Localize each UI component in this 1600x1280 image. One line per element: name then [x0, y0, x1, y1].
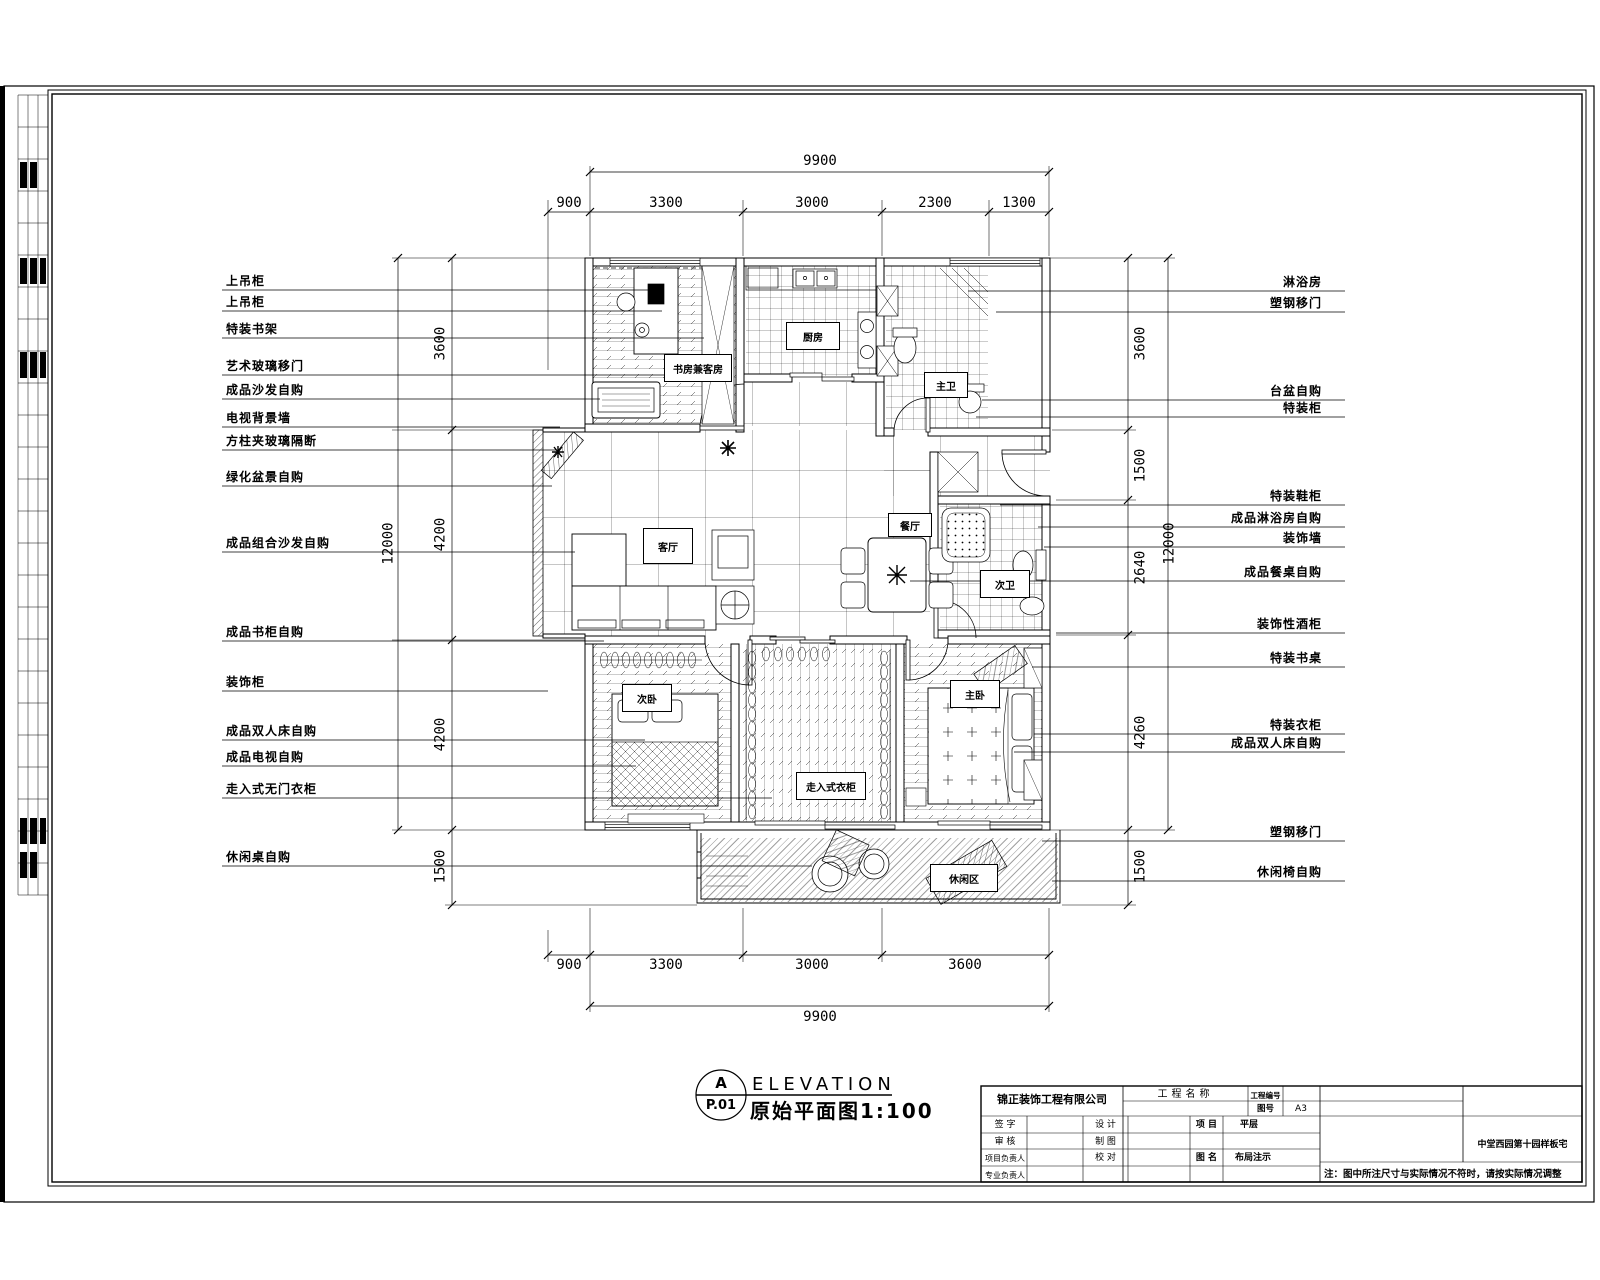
annotation-right: 特装柜: [1283, 401, 1322, 415]
dim-right-3600: 3600: [1134, 316, 1149, 372]
dim-right-overall: 12000: [1163, 508, 1178, 580]
annotation-left: 艺术玻璃移门: [226, 359, 304, 373]
titleblock-review-label: 审 核: [983, 1137, 1027, 1148]
annotation-right: 休闲椅自购: [1257, 865, 1322, 879]
annotation-left: 走入式无门衣柜: [226, 782, 317, 796]
titleblock-project-cell: 中堂西园第十园样板宅: [1465, 1140, 1580, 1151]
title-elevation: ELEVATION: [752, 1074, 896, 1095]
dim-left-3600: 3600: [434, 316, 449, 372]
annotation-right: 装饰墙: [1283, 531, 1322, 545]
annotation-right: 塑钢移门: [1270, 296, 1322, 310]
room-label: 次卫: [980, 570, 1030, 598]
annotation-right: 特装书桌: [1270, 651, 1322, 665]
annotation-left: 上吊柜: [226, 274, 265, 288]
titleblock-check-label: 校 对: [1085, 1153, 1126, 1164]
dim-right-4260: 4260: [1134, 705, 1149, 761]
annotation-right: 装饰性酒柜: [1257, 617, 1322, 631]
titleblock-lead-label: 专业负责人: [981, 1170, 1029, 1181]
annotation-right: 成品淋浴房自购: [1231, 511, 1322, 525]
room-label: 次卧: [622, 684, 672, 712]
bay-window: [533, 430, 543, 636]
dim-top-seg-1300: 1300: [991, 196, 1047, 211]
dim-top-seg-3000: 3000: [784, 196, 840, 211]
annotation-left: 方柱夹玻璃隔断: [226, 434, 317, 448]
annotation-right: 特装鞋柜: [1270, 489, 1322, 503]
room-label: 客厅: [643, 528, 693, 564]
titleblock-dwg-value: 布局注示: [1235, 1153, 1271, 1164]
annotation-left: 成品双人床自购: [226, 724, 317, 738]
dim-left-1500: 1500: [434, 839, 449, 895]
annotation-left: 休闲桌自购: [226, 850, 291, 864]
titleblock-pm-label: 项目负责人: [981, 1153, 1029, 1164]
annotation-right: 成品餐桌自购: [1244, 565, 1322, 579]
revision-strip: [18, 95, 48, 895]
titleblock-item-label: 项 目: [1190, 1120, 1223, 1131]
titleblock-project-name-label: 工程名称: [1125, 1089, 1246, 1100]
annotation-left: 绿化盆景自购: [226, 470, 304, 484]
dim-left-overall: 12000: [382, 508, 397, 580]
titleblock-sheet-no-value: A3: [1284, 1104, 1318, 1115]
annotation-left: 特装书架: [226, 322, 278, 336]
titleblock-item-value: 平层: [1240, 1120, 1258, 1131]
title-bubble-letter: A: [706, 1074, 736, 1092]
annotation-right: 台盆自购: [1270, 384, 1322, 398]
room-label: 主卧: [950, 680, 1000, 708]
dim-right-1500b: 1500: [1134, 839, 1149, 895]
dim-bottom-seg-3000: 3000: [784, 958, 840, 973]
titleblock-note: 注：图中所注尺寸与实际情况不符时，请按实际情况调整: [1324, 1166, 1580, 1180]
annotation-left: 电视背景墙: [226, 411, 291, 425]
dim-left-4200b: 4200: [434, 707, 449, 763]
dim-top-seg-2300: 2300: [907, 196, 963, 211]
annotation-right: 成品双人床自购: [1231, 736, 1322, 750]
titleblock-project-no-label: 工程编号: [1249, 1090, 1282, 1101]
room-label: 走入式衣柜: [796, 772, 866, 800]
title-plan-name: 原始平面图1:100: [750, 1095, 934, 1124]
annotation-left: 成品沙发自购: [226, 383, 304, 397]
revision-strip-marks: [20, 162, 46, 878]
room-label: 书房兼客房: [664, 354, 732, 382]
titleblock-dwg-label: 图 名: [1190, 1153, 1223, 1164]
annotation-left: 上吊柜: [226, 295, 265, 309]
titleblock-company: 锦正装饰工程有限公司: [983, 1094, 1121, 1105]
annotation-right: 塑钢移门: [1270, 825, 1322, 839]
dim-top-seg-3300: 3300: [638, 196, 694, 211]
titleblock-sign-label: 签 字: [983, 1120, 1027, 1131]
annotation-left: 装饰柜: [226, 675, 265, 689]
dim-bottom-seg-3600: 3600: [937, 958, 993, 973]
annotation-right: 淋浴房: [1283, 275, 1322, 289]
room-label: 厨房: [786, 322, 840, 350]
annotation-left: 成品组合沙发自购: [226, 536, 330, 550]
dim-top-seg-900: 900: [546, 196, 592, 211]
drawing-sheet: 900 3300 3000 2300 1300 9900 900 3300 30…: [0, 0, 1600, 1280]
title-bubble-number: P.01: [702, 1098, 740, 1113]
room-label: 主卫: [924, 372, 968, 398]
dim-top-overall: 9900: [792, 154, 848, 169]
dim-right-2640: 2640: [1134, 540, 1149, 596]
room-label: 餐厅: [888, 513, 932, 537]
titleblock-sheet-no-label: 图号: [1249, 1104, 1282, 1115]
dim-bottom-overall: 9900: [792, 1010, 848, 1025]
annotation-left: 成品书柜自购: [226, 625, 304, 639]
titleblock-design-label: 设 计: [1085, 1120, 1126, 1131]
dim-left-4200a: 4200: [434, 507, 449, 563]
dim-bottom-seg-900: 900: [546, 958, 592, 973]
annotation-right: 特装衣柜: [1270, 718, 1322, 732]
titleblock-draft-label: 制 图: [1085, 1137, 1126, 1148]
dim-right-1500a: 1500: [1134, 438, 1149, 494]
annotation-left: 成品电视自购: [226, 750, 304, 764]
dim-bottom-seg-3300: 3300: [638, 958, 694, 973]
room-label: 休闲区: [930, 864, 998, 892]
